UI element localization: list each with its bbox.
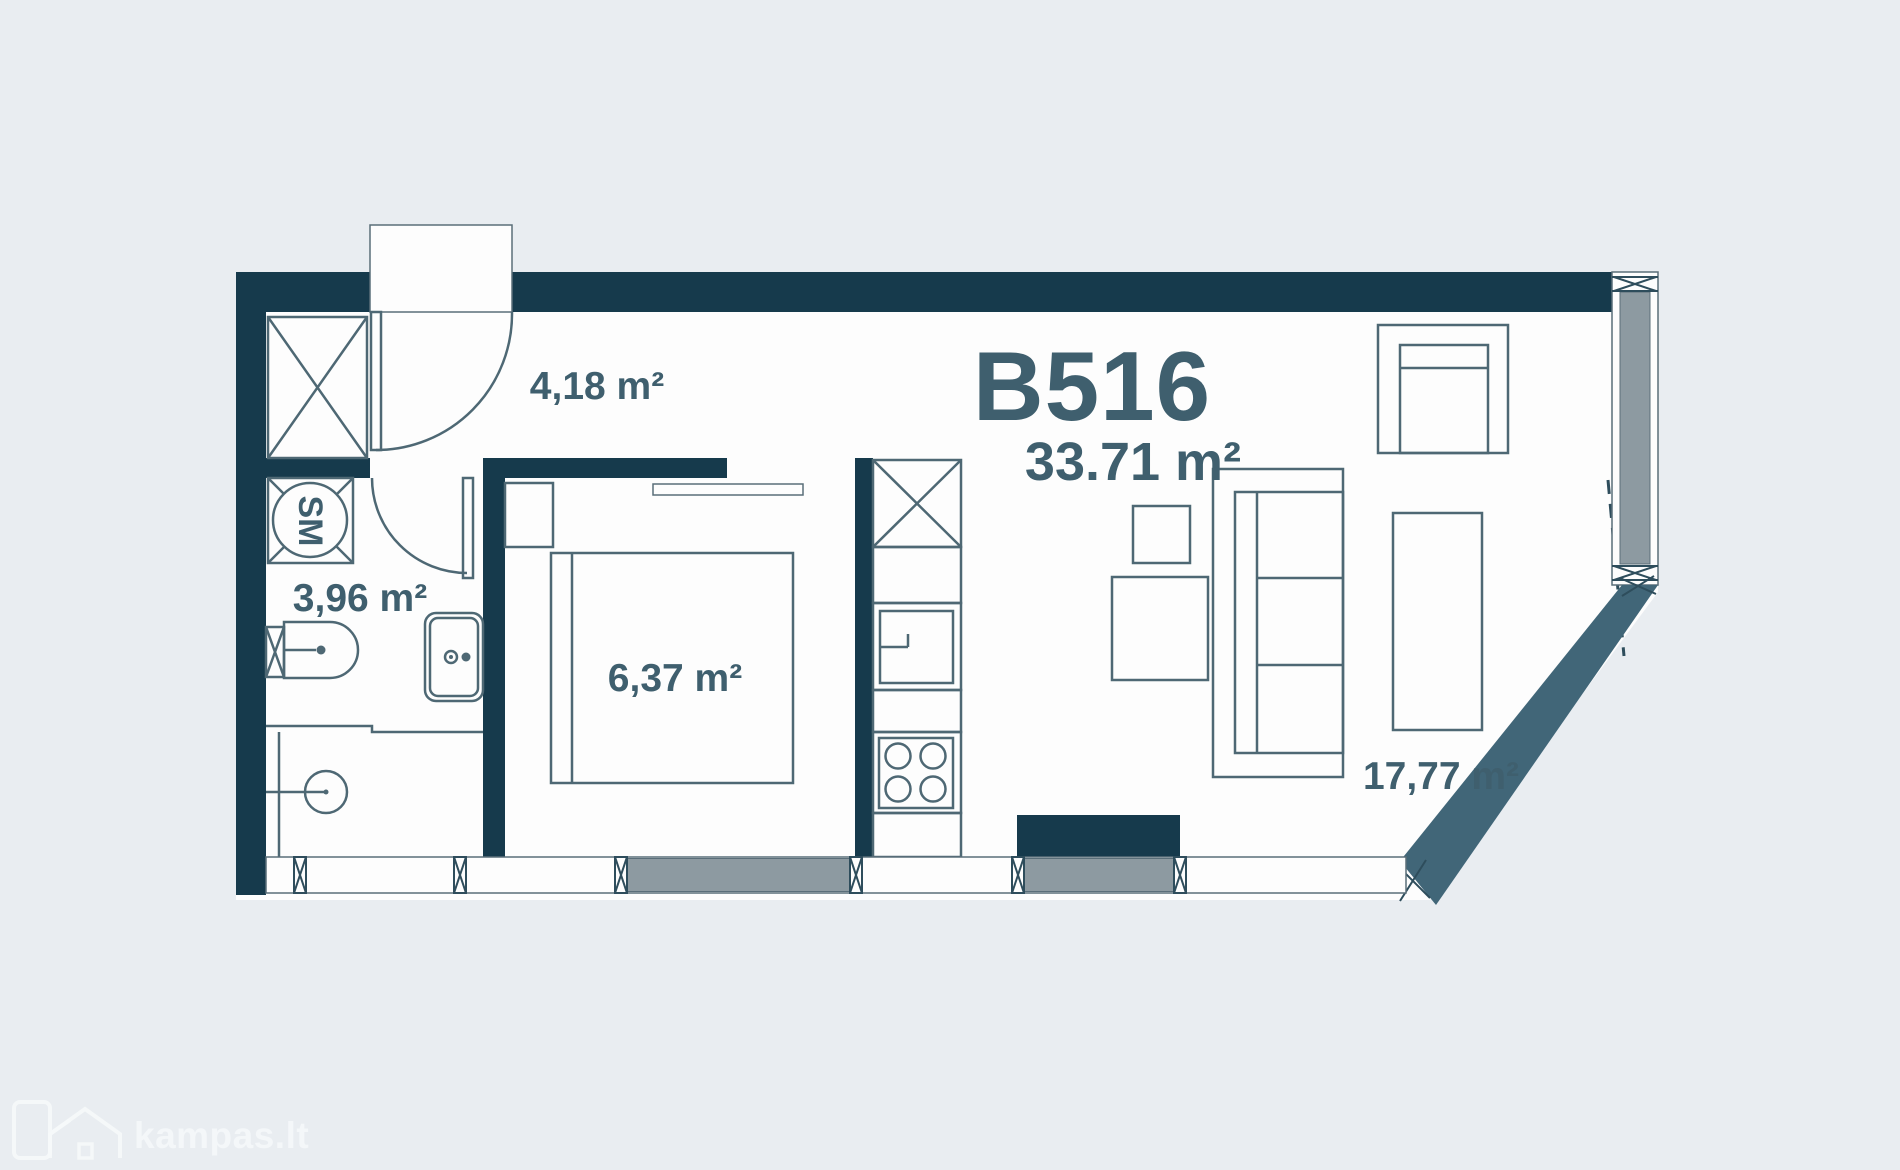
right-window [1612,272,1658,585]
bedroom-sliding-door [653,484,803,495]
bottom-windows [266,857,1406,893]
shower-drain-dot [324,790,329,795]
sink-tap-dot [462,653,471,662]
wall-top-main [512,272,1612,312]
window-mullion [850,857,862,893]
toilet-flush-dot [317,646,326,655]
entrance-door-recess [370,225,512,312]
room-area-label-bedroom: 6,37 m² [608,657,742,700]
total-area-label: 33.71 m² [1025,432,1241,492]
washing-machine: SM [268,478,353,563]
wall-kitchen [855,458,873,857]
watermark-brand: kampas.lt [134,1115,309,1156]
bottom-window-glass-right [1022,859,1177,892]
wall-left [236,272,266,895]
washing-machine-label: SM [291,496,329,547]
window-mullion [454,857,466,893]
window-mullion [294,857,306,893]
bottom-window-glass-left [625,859,853,892]
wall-bathroom-bedroom [483,458,505,857]
tv-stand [1017,815,1180,857]
right-window-glass [1620,292,1650,564]
window-mullion [615,857,627,893]
room-area-label-bathroom: 3,96 m² [293,577,427,620]
window-mullion [1174,857,1186,893]
entrance-door-leaf [371,312,381,450]
floorplan-canvas: SM [0,0,1900,1170]
floor-plan: SM [0,0,1900,1170]
sink-drain-dot [449,655,453,659]
bathroom-door-leaf [463,478,473,578]
window-mullion [1012,857,1024,893]
room-area-label-hallway: 4,18 m² [530,365,664,408]
room-area-label-living: 17,77 m² [1363,755,1519,798]
wall-bedroom-top [483,458,727,478]
wall-hall-bathroom-divider [266,458,370,478]
unit-id-label: B516 [973,331,1211,441]
